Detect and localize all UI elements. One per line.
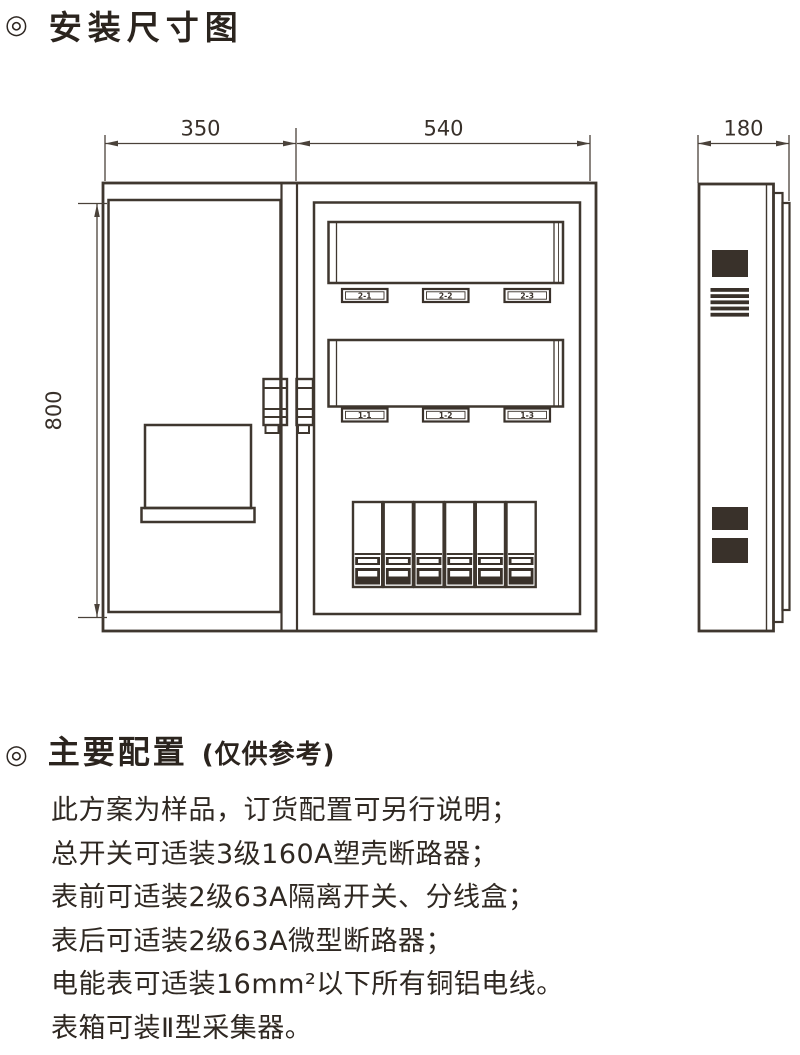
circuit-breaker: [384, 502, 413, 587]
meter-label: 1-1: [358, 411, 372, 420]
door-latch-right: [297, 379, 314, 433]
dimension-800: 800: [42, 204, 107, 618]
bullseye-icon: ◎: [5, 742, 28, 768]
meter-label: 1-2: [439, 411, 453, 420]
config-section-title: 主要配置: [48, 727, 188, 773]
side-door-face: [783, 203, 790, 610]
dim-label-350: 350: [180, 117, 220, 141]
config-line: 表前可适装2级63A隔离开关、分线盒；: [51, 876, 791, 920]
right-door: 2-1 2-2 2-3 1-1 1-2 1-3: [314, 203, 580, 615]
meter-label: 1-3: [520, 411, 534, 420]
meter-label-plates-row2: 1-1 1-2 1-3: [342, 409, 550, 422]
left-door: [109, 200, 281, 612]
section-config-header: ◎ 主要配置 (仅供参考): [5, 727, 335, 773]
meter-label: 2-3: [520, 292, 534, 301]
config-section-subtitle: (仅供参考): [202, 734, 336, 771]
circuit-breaker: [414, 502, 443, 587]
vent-louvers: [711, 288, 750, 317]
dim-label-180: 180: [723, 117, 763, 141]
meter-window-2: [329, 340, 564, 407]
config-line: 此方案为样品，订货配置可另行说明；: [51, 789, 791, 833]
meter-label: 2-1: [358, 292, 372, 301]
installation-dimension-drawing: 2-1 2-2 2-3 1-1 1-2 1-3: [0, 0, 800, 700]
circuit-breaker: [476, 502, 505, 587]
door-latch-left: [264, 379, 288, 433]
config-line: 总开关可适装3级160A塑壳断路器；: [51, 833, 791, 877]
door-window: [145, 425, 251, 508]
door-window-sill: [142, 508, 255, 522]
config-line: 电能表可适装16mm²以下所有铜铝电线。: [51, 963, 791, 1007]
front-view: 2-1 2-2 2-3 1-1 1-2 1-3: [103, 183, 596, 631]
meter-window-1: [329, 222, 564, 283]
dim-label-800: 800: [42, 390, 66, 430]
config-line: 表箱可装Ⅱ型采集器。: [51, 1007, 791, 1051]
dim-label-540: 540: [423, 117, 463, 141]
meter-label: 2-2: [439, 292, 453, 301]
dimension-540: 540: [297, 117, 590, 182]
breaker-row: [353, 502, 536, 587]
vent-block-top: [712, 250, 748, 277]
vent-block-bottom-1: [712, 507, 748, 530]
vent-block-bottom-2: [712, 538, 748, 563]
left-door-panel: [109, 200, 281, 612]
circuit-breaker: [507, 502, 536, 587]
dimension-350: 350: [105, 117, 296, 182]
meter-label-plates-row1: 2-1 2-2 2-3: [342, 289, 550, 302]
config-description-list: 此方案为样品，订货配置可另行说明； 总开关可适装3级160A塑壳断路器； 表前可…: [51, 789, 791, 1050]
dimension-180: 180: [698, 117, 789, 202]
config-line: 表后可适装2级63A微型断路器；: [51, 920, 791, 964]
catalog-page: ◎ 安装尺寸图: [0, 0, 800, 1055]
circuit-breaker: [353, 502, 382, 587]
circuit-breaker: [445, 502, 474, 587]
side-view: [699, 184, 790, 631]
